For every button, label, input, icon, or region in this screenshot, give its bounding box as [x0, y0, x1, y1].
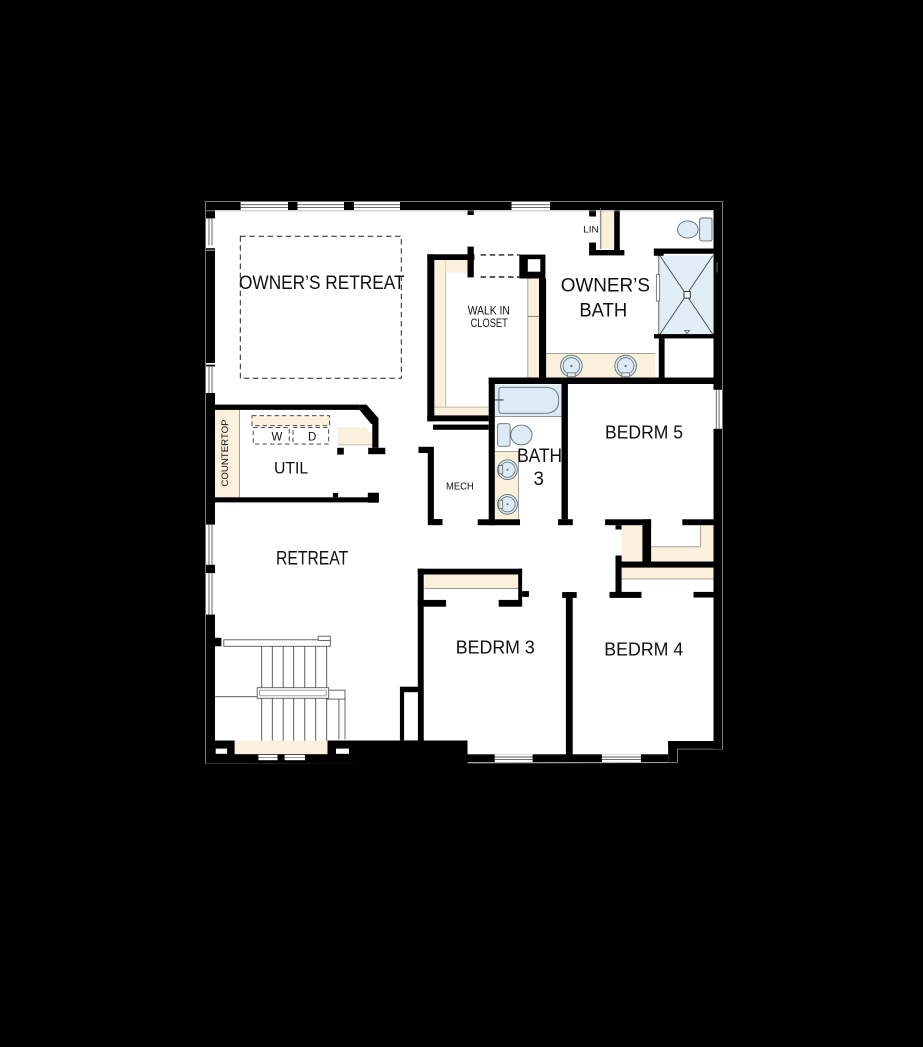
svg-text:BEDRM 4: BEDRM 4 — [604, 639, 683, 660]
svg-text:3: 3 — [534, 468, 544, 490]
svg-text:BATH: BATH — [579, 300, 627, 322]
svg-text:COUNTERTOP: COUNTERTOP — [220, 419, 231, 486]
svg-text:BEDRM 5: BEDRM 5 — [605, 422, 683, 443]
svg-text:OWNER’S: OWNER’S — [561, 275, 650, 297]
svg-text:LIN: LIN — [583, 224, 599, 234]
svg-text:BATH: BATH — [517, 445, 562, 467]
svg-text:W: W — [272, 431, 283, 443]
svg-text:CLOSET: CLOSET — [471, 318, 508, 330]
svg-text:OWNER’S RETREAT: OWNER’S RETREAT — [239, 272, 405, 294]
svg-text:RETREAT: RETREAT — [276, 547, 348, 569]
svg-text:BEDRM 3: BEDRM 3 — [456, 637, 535, 658]
svg-text:UTIL: UTIL — [274, 459, 308, 477]
svg-text:MECH: MECH — [446, 481, 474, 493]
svg-text:WALK IN: WALK IN — [468, 305, 510, 317]
svg-text:D: D — [308, 431, 316, 443]
